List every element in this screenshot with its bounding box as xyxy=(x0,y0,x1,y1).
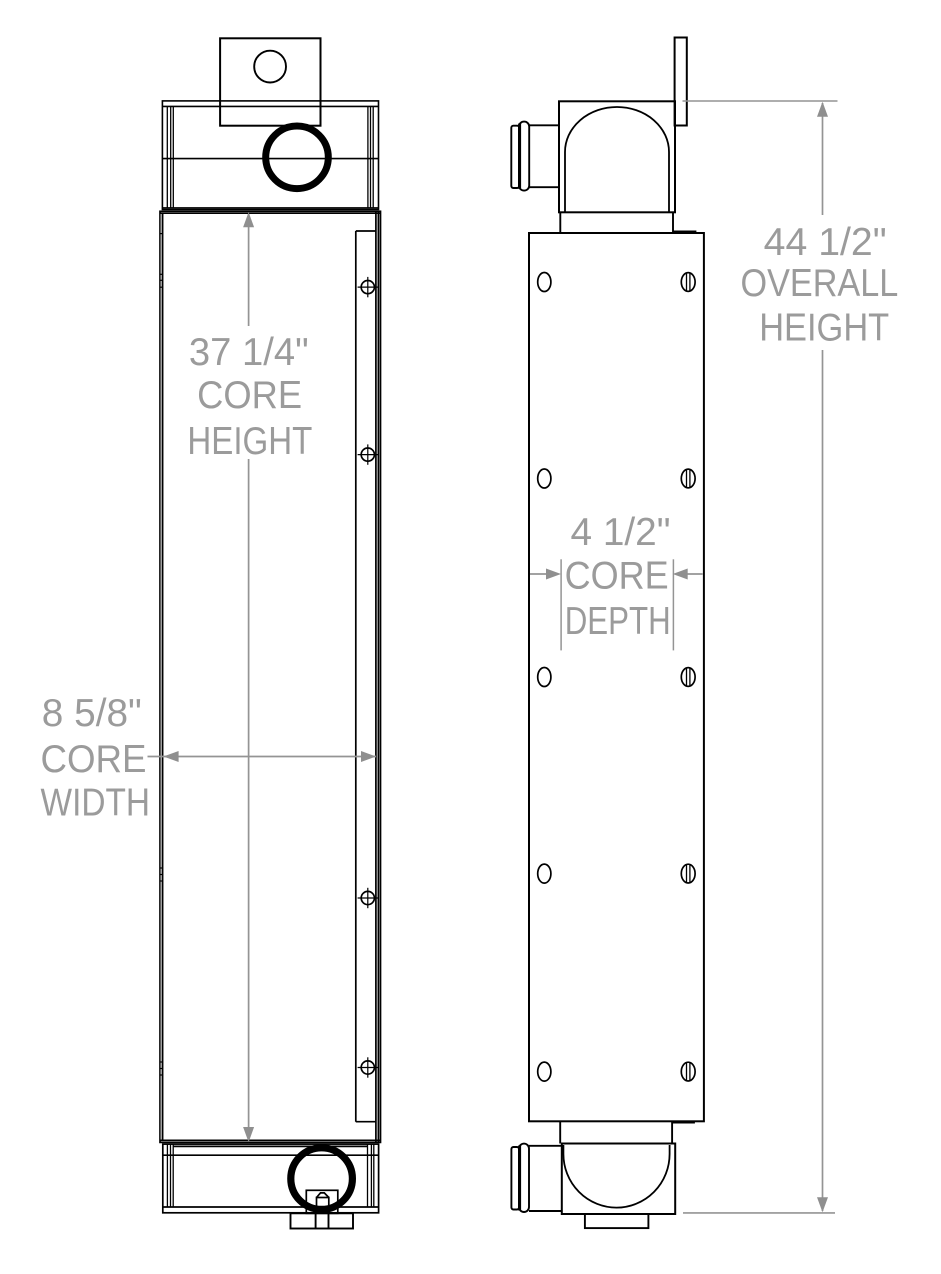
svg-text:HEIGHT: HEIGHT xyxy=(759,306,889,349)
svg-text:44 1/2": 44 1/2" xyxy=(764,221,887,264)
svg-text:8 5/8": 8 5/8" xyxy=(42,692,142,735)
svg-text:CORE: CORE xyxy=(565,555,669,598)
svg-text:OVERALL: OVERALL xyxy=(741,262,899,305)
svg-text:DEPTH: DEPTH xyxy=(565,600,671,643)
svg-text:WIDTH: WIDTH xyxy=(41,782,151,825)
svg-text:CORE: CORE xyxy=(41,738,147,781)
svg-text:37 1/4": 37 1/4" xyxy=(189,331,309,374)
svg-text:HEIGHT: HEIGHT xyxy=(187,420,312,463)
svg-text:4 1/2": 4 1/2" xyxy=(571,511,671,554)
svg-text:CORE: CORE xyxy=(197,374,302,417)
